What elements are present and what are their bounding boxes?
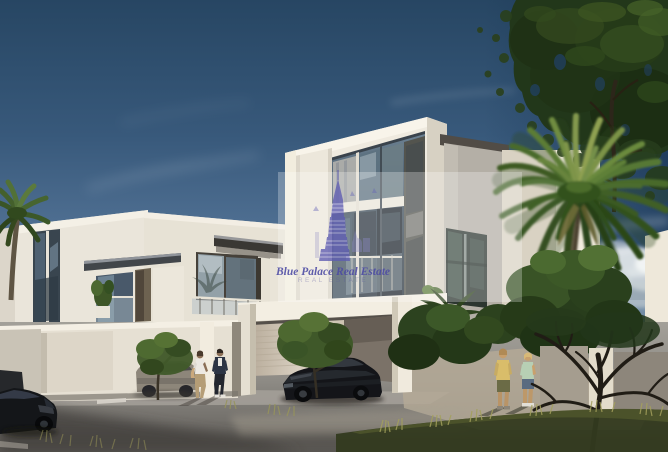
svg-text:REAL ESTATE: REAL ESTATE xyxy=(298,277,368,284)
